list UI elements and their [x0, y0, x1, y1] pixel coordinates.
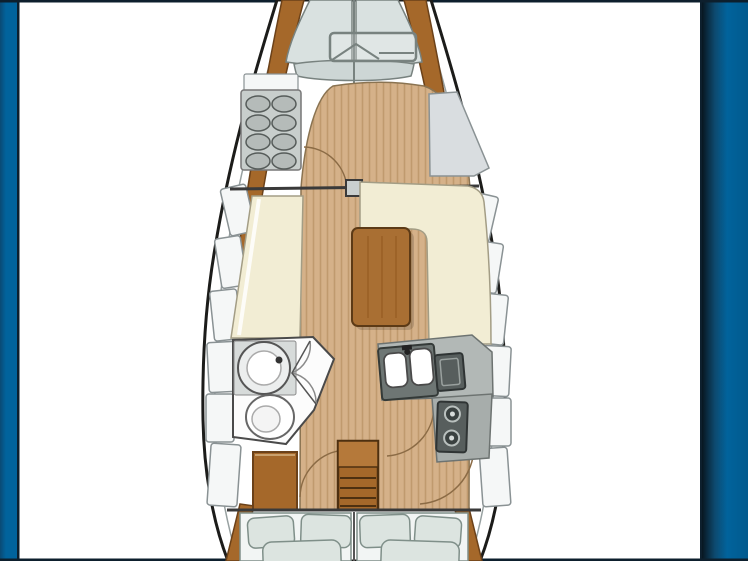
shelf-bin — [272, 134, 296, 150]
sink-basin — [383, 352, 408, 388]
shelf-bin — [272, 115, 296, 131]
saloon-table — [352, 228, 410, 326]
nav-locker — [253, 452, 297, 510]
head-faucet — [276, 357, 283, 364]
shelf-bin — [246, 153, 270, 169]
floorplan-page — [0, 0, 748, 561]
shelf-bin — [246, 134, 270, 150]
shelf-bin — [246, 115, 270, 131]
berth-mattress — [380, 540, 459, 561]
left-blue-strip — [0, 0, 17, 561]
shelf-bin — [272, 153, 296, 169]
galley-sink-unit — [378, 343, 438, 401]
berth-mattress — [262, 540, 341, 561]
hull-locker — [207, 443, 241, 507]
saloon — [231, 182, 491, 344]
anchor-hatch — [330, 33, 416, 61]
icebox-unit — [434, 353, 465, 391]
sailboat-floorplan — [0, 0, 748, 561]
aft-cabin — [227, 510, 481, 561]
toilet-bowl — [252, 406, 280, 432]
stove-unit — [436, 401, 468, 452]
foredeck — [286, 0, 422, 84]
shelf-bin — [246, 96, 270, 112]
sink-basin — [409, 348, 434, 386]
hull-locker — [206, 394, 234, 442]
shelf-bin — [272, 96, 296, 112]
right-blue-strip — [702, 0, 748, 561]
left-frame-line — [17, 0, 20, 561]
right-frame-line — [700, 0, 702, 561]
head-sink-basin — [247, 351, 281, 385]
companionway-sill — [338, 441, 378, 467]
